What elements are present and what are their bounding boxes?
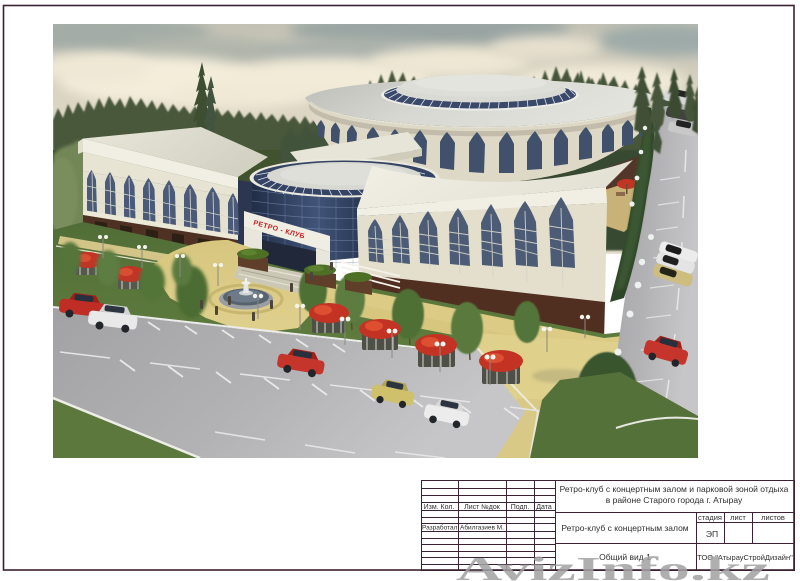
- svg-text:Ретро-клуб с концертным залом: Ретро-клуб с концертным залом и парковой…: [560, 484, 789, 494]
- svg-text:Изм. Кол.: Изм. Кол.: [424, 504, 455, 511]
- svg-text:Разработал: Разработал: [422, 524, 458, 532]
- svg-text:Дата: Дата: [536, 504, 552, 511]
- svg-text:Лист №док: Лист №док: [464, 504, 501, 511]
- svg-text:ЭП: ЭП: [706, 529, 718, 539]
- svg-text:Абилгазиев М.: Абилгазиев М.: [460, 524, 504, 532]
- svg-text:Ретро-клуб с концертным залом: Ретро-клуб с концертным залом: [561, 523, 688, 533]
- svg-text:в районе Старого города г. Аты: в районе Старого города г. Атырау: [606, 495, 743, 505]
- svg-text:лист: лист: [730, 513, 746, 522]
- svg-text:Подп.: Подп.: [511, 504, 530, 511]
- svg-text:AvizInfo.kz: AvizInfo.kz: [456, 551, 770, 581]
- svg-text:стадия: стадия: [698, 513, 722, 522]
- svg-text:листов: листов: [761, 513, 785, 522]
